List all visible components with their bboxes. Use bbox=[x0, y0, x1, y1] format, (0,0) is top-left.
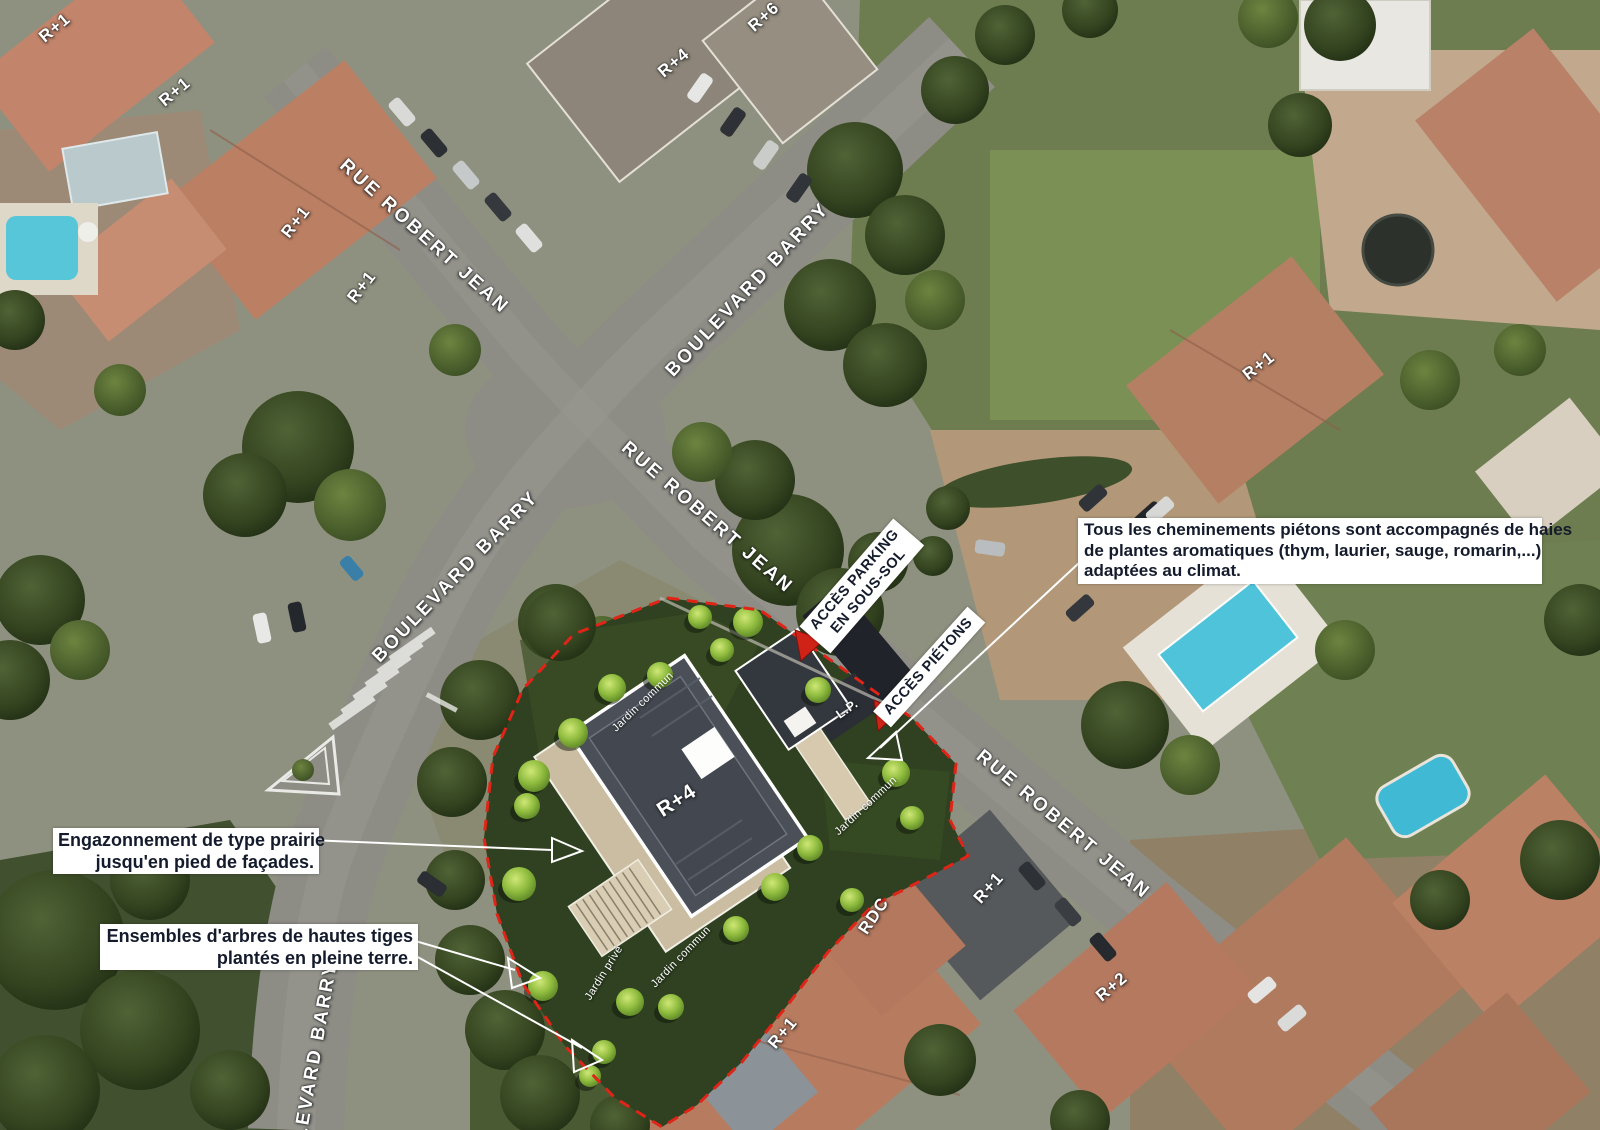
callout-hedges-line3: adaptées au climat. bbox=[1084, 561, 1536, 582]
swimming-pool bbox=[6, 216, 78, 280]
callout-trees-line1: Ensembles d'arbres de hautes tiges bbox=[105, 925, 413, 947]
callout-grass-line2: jusqu'en pied de façades. bbox=[58, 851, 314, 873]
callout-trees: Ensembles d'arbres de hautes tiges plant… bbox=[100, 924, 418, 970]
callout-grass: Engazonnement de type prairie jusqu'en p… bbox=[53, 828, 319, 874]
callout-grass-line1: Engazonnement de type prairie bbox=[58, 829, 314, 851]
callout-trees-line2: plantés en pleine terre. bbox=[105, 947, 413, 969]
callout-hedges-line2: de plantes aromatiques (thym, laurier, s… bbox=[1084, 541, 1536, 562]
round-tank bbox=[1363, 215, 1433, 285]
annotated-aerial-site-plan: RUE ROBERT JEAN BOULEVARD BARRY RUE ROBE… bbox=[0, 0, 1600, 1130]
callout-hedges: Tous les cheminements piétons sont accom… bbox=[1078, 518, 1542, 584]
parasol bbox=[78, 222, 98, 242]
callout-hedges-line1: Tous les cheminements piétons sont accom… bbox=[1084, 520, 1536, 541]
